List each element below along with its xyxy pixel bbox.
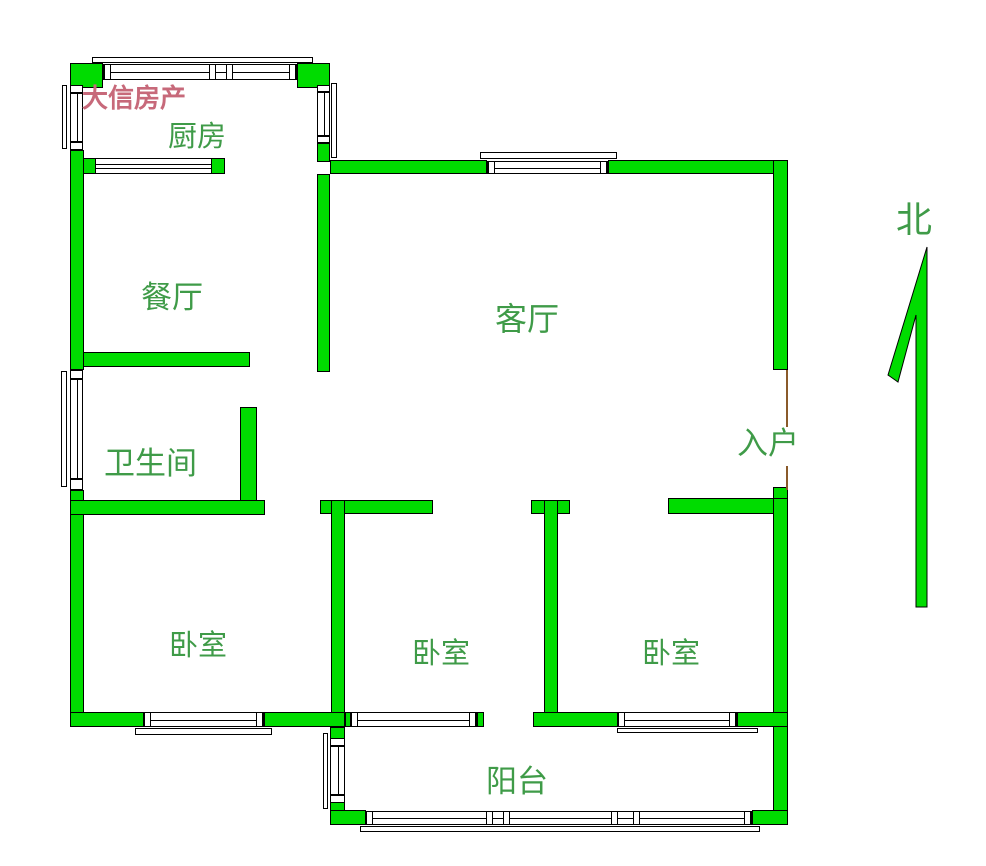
wall	[83, 352, 250, 367]
window	[350, 712, 477, 727]
wall	[70, 712, 144, 727]
room-label-balcony: 阳台	[486, 766, 548, 797]
wall	[211, 158, 225, 174]
wall	[70, 150, 84, 370]
wall	[752, 810, 788, 825]
window-sill	[617, 728, 758, 733]
window	[487, 161, 608, 174]
window	[365, 811, 752, 825]
window	[103, 64, 297, 80]
window	[317, 92, 330, 136]
pass-through-window	[95, 158, 212, 174]
wall	[533, 712, 620, 727]
room-label-kitchen: 厨房	[168, 123, 226, 152]
room-label-bedroom-middle: 卧室	[412, 640, 470, 669]
window-sill	[330, 795, 345, 803]
window-sill	[70, 142, 83, 150]
wall	[317, 143, 330, 162]
wall	[264, 712, 345, 727]
window-sill	[70, 370, 83, 379]
window-sill	[360, 826, 760, 832]
window-sill	[317, 136, 330, 143]
window-sill	[323, 733, 328, 809]
wall	[317, 174, 330, 372]
window-sill	[135, 728, 272, 735]
north-label: 北	[896, 202, 932, 238]
wall	[70, 500, 265, 515]
window-sill	[331, 83, 337, 158]
floor-plan: 北 大信房产 厨房 餐厅 客厅 卫生间 入户 卧室 卧室 卧室 阳台	[0, 0, 986, 866]
window-sill	[480, 152, 617, 159]
wall	[544, 500, 558, 727]
wall	[737, 712, 788, 727]
wall	[773, 160, 788, 370]
window-sill	[62, 85, 67, 149]
wall	[70, 490, 84, 727]
window	[143, 712, 264, 727]
entry-door-line	[786, 370, 788, 427]
room-label-entry: 入户	[737, 428, 799, 459]
wall	[773, 498, 788, 825]
wall	[608, 160, 788, 174]
room-label-dining: 餐厅	[141, 282, 203, 313]
window-sill	[330, 738, 345, 746]
window-sill	[61, 371, 67, 487]
window-sill	[317, 85, 330, 92]
room-label-bedroom-right: 卧室	[642, 640, 700, 669]
wall	[330, 810, 366, 825]
wall	[240, 407, 257, 501]
wall	[330, 160, 487, 174]
north-arrow-icon	[880, 243, 936, 613]
room-label-living: 客厅	[495, 303, 559, 335]
window-sill	[70, 479, 83, 490]
wall	[477, 712, 484, 727]
wall	[331, 500, 345, 727]
room-label-bathroom: 卫生间	[104, 448, 197, 479]
window	[330, 746, 345, 795]
wall	[668, 498, 788, 514]
window	[70, 379, 83, 479]
window-sill	[92, 57, 313, 63]
room-label-bedroom-left: 卧室	[169, 632, 227, 661]
entry-door-line	[786, 466, 788, 490]
window	[617, 712, 737, 727]
watermark-text: 大信房产	[82, 86, 186, 112]
